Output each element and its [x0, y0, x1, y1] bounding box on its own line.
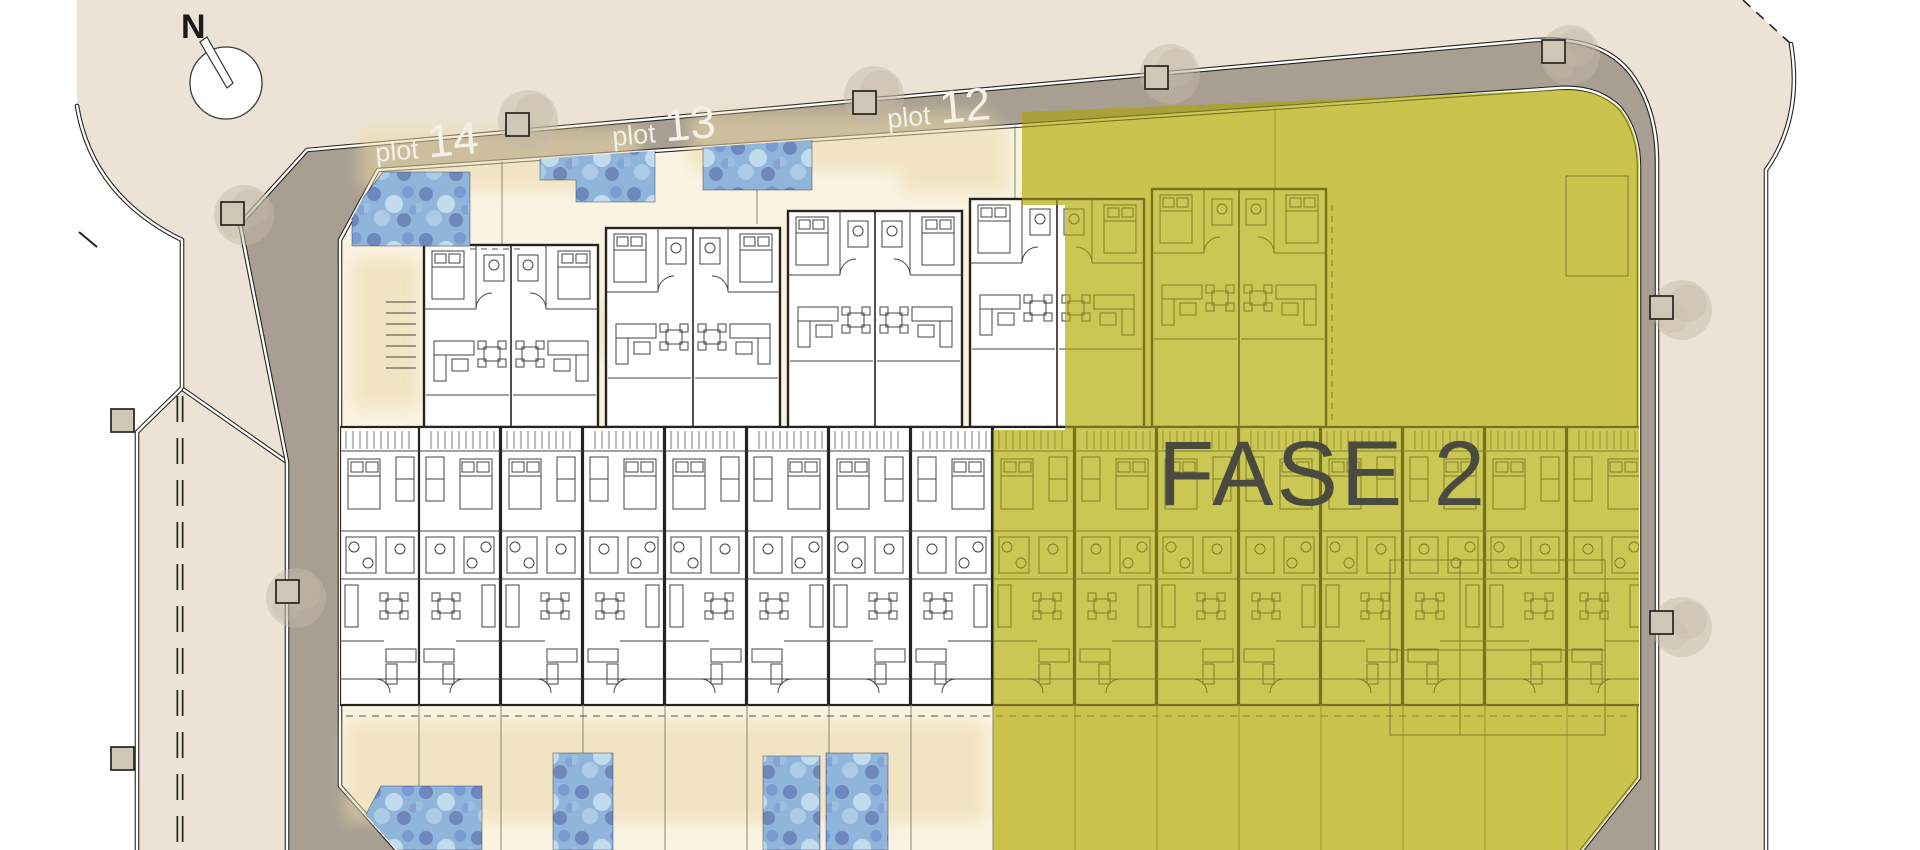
townhouse-unit	[501, 427, 582, 705]
townhouse-unit	[419, 427, 500, 705]
site-plan-canvas: plot 14 plot 13 plot 12 FASE 2 N	[0, 0, 1920, 850]
road-post-icon	[1650, 296, 1673, 319]
townhouse-unit	[340, 427, 421, 705]
road-post-icon	[506, 113, 529, 136]
plot-label-number: 14	[425, 111, 481, 167]
plot-label-number: 13	[662, 95, 718, 151]
plot-label-number: 12	[937, 77, 993, 133]
pool-garden-3	[763, 756, 820, 850]
plot-label-prefix: plot	[886, 100, 932, 134]
road-post-icon	[853, 91, 876, 114]
road-post-icon	[1145, 66, 1168, 89]
phase-label: FASE 2	[1158, 423, 1488, 525]
plot-label-prefix: plot	[374, 134, 420, 168]
compass-label: N	[181, 8, 206, 46]
villa-block	[606, 228, 780, 427]
townhouse-unit	[829, 427, 910, 705]
road-post-icon	[111, 409, 134, 432]
townhouse-unit	[583, 427, 664, 705]
road-post-icon	[276, 580, 299, 603]
site-plan-page: plot 14 plot 13 plot 12 FASE 2 N	[0, 0, 1920, 850]
townhouse-unit	[911, 427, 992, 705]
road-post-icon	[221, 202, 244, 225]
townhouse-unit	[747, 427, 828, 705]
pool-garden-2	[553, 753, 613, 850]
townhouse-unit	[665, 427, 746, 705]
pool-garden-4	[826, 753, 888, 850]
road-post-icon	[1542, 40, 1565, 63]
road-post-icon	[1650, 611, 1673, 634]
villa-block	[424, 245, 598, 427]
plot-label-prefix: plot	[611, 118, 657, 152]
villa-block	[788, 211, 962, 427]
road-post-icon	[111, 747, 134, 770]
